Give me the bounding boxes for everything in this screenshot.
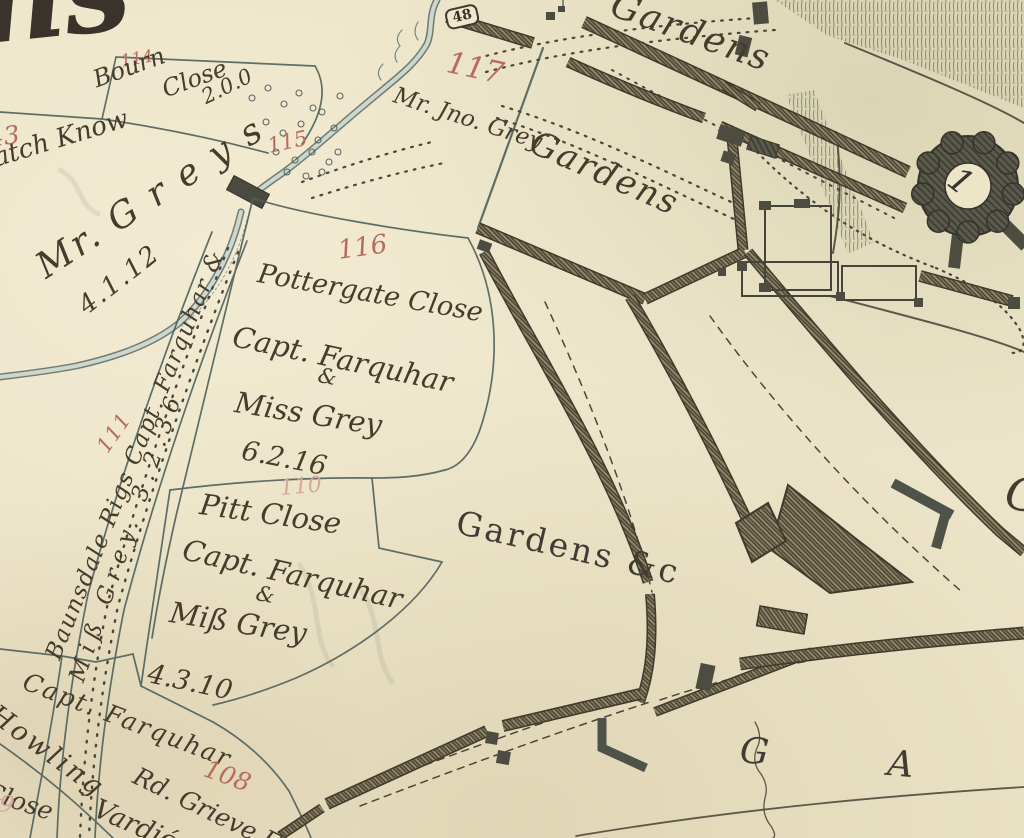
sluice: [227, 176, 270, 209]
corner-script-label: ns: [0, 0, 136, 62]
parcel-110-ampersand: &: [254, 583, 276, 607]
parcel-116-ampersand: &: [316, 365, 338, 389]
parcel-116-number: 116: [336, 231, 389, 264]
parcel-110-number: 110: [279, 474, 323, 500]
estate-map: ns 114 Bourn Close 2.0.0 43 atch Know Mr…: [0, 0, 1024, 838]
garden-walls: [280, 17, 1024, 836]
castle-keep: [912, 132, 1024, 268]
